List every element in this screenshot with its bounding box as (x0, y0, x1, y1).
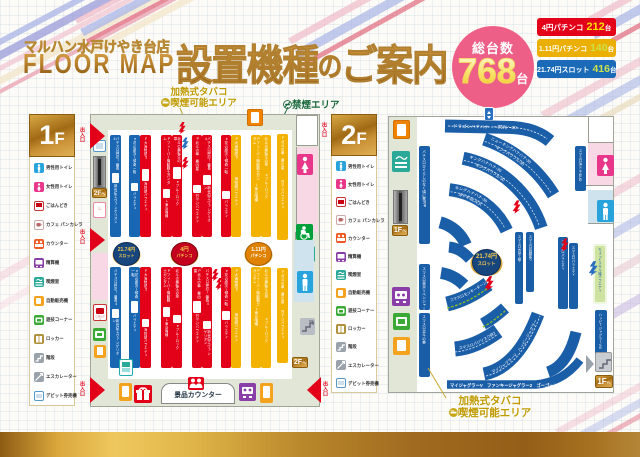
svg-text:スマスロバラエティ: スマスロバラエティ (571, 245, 575, 277)
svg-text:スマスロ北斗の拳: スマスロ北斗の拳 (421, 314, 426, 344)
svg-text:マイジャグラーV ファンキージャグラー2 ゴーゴージャグラー: マイジャグラーV ファンキージャグラー2 ゴーゴージャグラー3 (450, 382, 578, 389)
svg-text:スマスロ吉宗~極~: スマスロ吉宗~極~ (517, 234, 521, 263)
svg-text:パチスロひぐらしのなく頃に業30Φ: パチスロひぐらしのなく頃に業30Φ (421, 150, 426, 207)
svg-text:スマスロ東京リベンジャーズ: スマスロ東京リベンジャーズ (421, 266, 426, 314)
svg-text:スマスロ回胴条?: スマスロ回胴条? (528, 234, 532, 261)
svg-text:スマスロ沖ドキ!DUO: スマスロ沖ドキ!DUO (578, 148, 582, 182)
svg-text:ハッピージャグラーVIII: ハッピージャグラーVIII (598, 313, 602, 349)
